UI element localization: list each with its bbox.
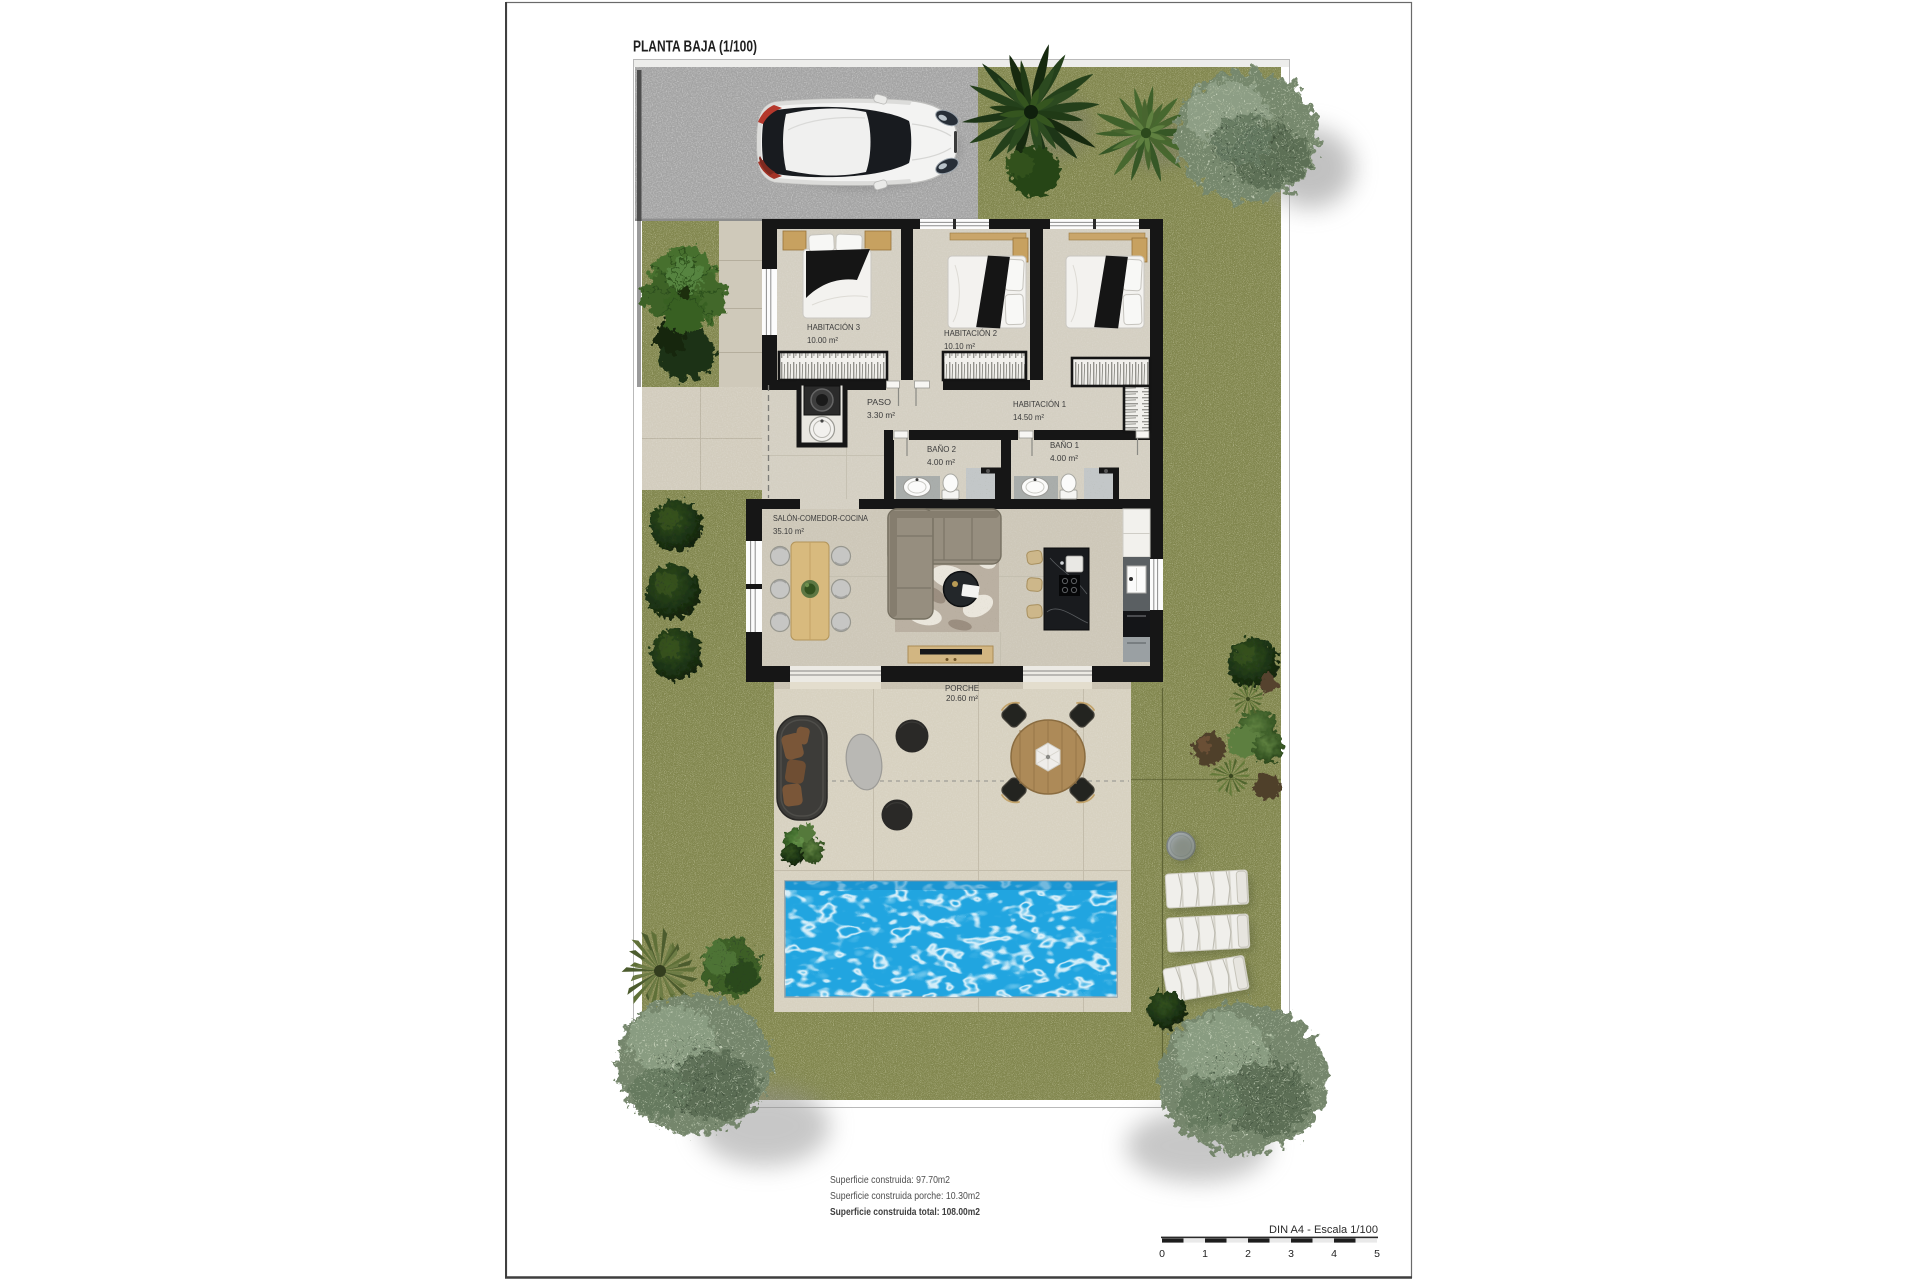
- svg-text:DIN A4 - Escala 1/100: DIN A4 - Escala 1/100: [1269, 1224, 1378, 1236]
- svg-text:HABITACIÓN 2: HABITACIÓN 2: [944, 328, 997, 338]
- svg-text:4.00 m²: 4.00 m²: [1050, 453, 1078, 463]
- svg-text:10.00 m²: 10.00 m²: [807, 335, 838, 345]
- svg-text:4.00 m²: 4.00 m²: [927, 457, 955, 467]
- svg-text:Superficie construida total: 1: Superficie construida total: 108.00m2: [830, 1206, 980, 1218]
- svg-text:0: 0: [1159, 1248, 1165, 1260]
- svg-text:PLANTA BAJA (1/100): PLANTA BAJA (1/100): [633, 39, 757, 56]
- svg-text:Superficie construida porche:: Superficie construida porche: 10.30m2: [830, 1190, 980, 1202]
- svg-text:PASO: PASO: [867, 397, 891, 407]
- svg-text:3.30 m²: 3.30 m²: [867, 410, 895, 420]
- svg-text:4: 4: [1331, 1248, 1337, 1260]
- svg-text:Superficie construida: 97.70m2: Superficie construida: 97.70m2: [830, 1174, 950, 1186]
- svg-text:BAÑO 2: BAÑO 2: [927, 444, 956, 454]
- svg-text:HABITACIÓN 3: HABITACIÓN 3: [807, 322, 860, 332]
- svg-text:PORCHE: PORCHE: [945, 683, 979, 693]
- svg-text:10.10 m²: 10.10 m²: [944, 341, 975, 351]
- svg-text:2: 2: [1245, 1248, 1251, 1260]
- svg-text:HABITACIÓN 1: HABITACIÓN 1: [1013, 399, 1066, 409]
- svg-text:BAÑO 1: BAÑO 1: [1050, 440, 1079, 450]
- svg-text:1: 1: [1202, 1248, 1208, 1260]
- svg-text:35.10 m²: 35.10 m²: [773, 526, 804, 536]
- svg-text:14.50 m²: 14.50 m²: [1013, 412, 1044, 422]
- svg-text:SALÓN-COMEDOR-COCINA: SALÓN-COMEDOR-COCINA: [773, 513, 868, 523]
- svg-text:3: 3: [1288, 1248, 1294, 1260]
- svg-text:5: 5: [1374, 1248, 1380, 1260]
- svg-text:20.60 m²: 20.60 m²: [946, 694, 978, 703]
